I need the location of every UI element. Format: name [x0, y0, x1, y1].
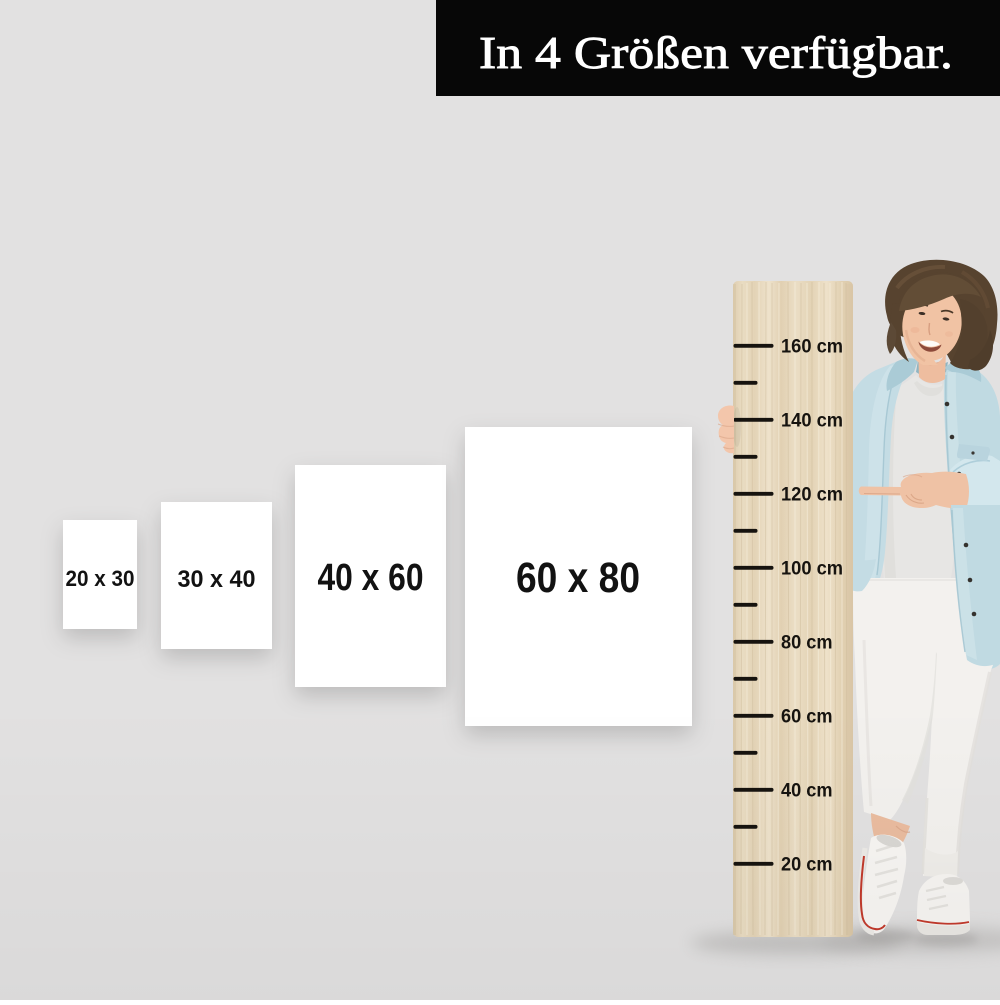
svg-text:40 x 60: 40 x 60 [318, 557, 424, 599]
svg-text:60 x 80: 60 x 80 [516, 555, 640, 602]
svg-text:20 x 30: 20 x 30 [66, 566, 135, 591]
svg-text:80 cm: 80 cm [781, 632, 833, 654]
svg-text:100 cm: 100 cm [781, 558, 843, 580]
svg-text:30 x 40: 30 x 40 [178, 566, 256, 593]
svg-text:In 4 Größen verfügbar.: In 4 Größen verfügbar. [479, 27, 953, 78]
svg-text:160 cm: 160 cm [781, 336, 843, 358]
svg-text:120 cm: 120 cm [781, 484, 843, 506]
svg-text:140 cm: 140 cm [781, 410, 843, 432]
